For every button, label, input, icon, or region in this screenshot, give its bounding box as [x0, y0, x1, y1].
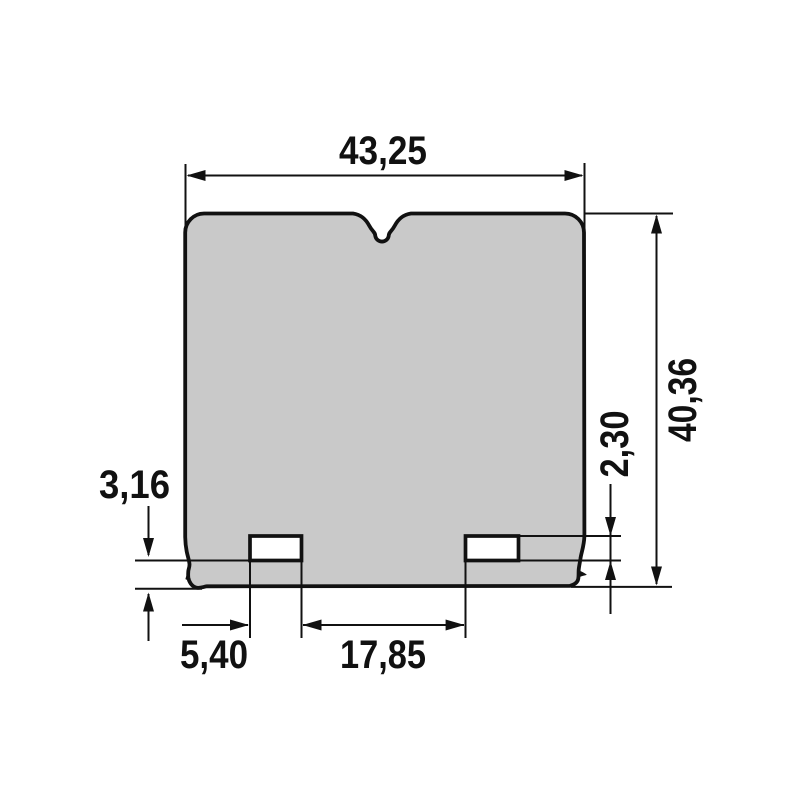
svg-text:17,85: 17,85	[340, 633, 426, 677]
svg-text:5,40: 5,40	[180, 633, 248, 677]
svg-text:43,25: 43,25	[339, 129, 427, 173]
svg-text:2,30: 2,30	[593, 411, 637, 478]
svg-text:3,16: 3,16	[99, 463, 170, 507]
svg-text:40,36: 40,36	[661, 358, 705, 442]
